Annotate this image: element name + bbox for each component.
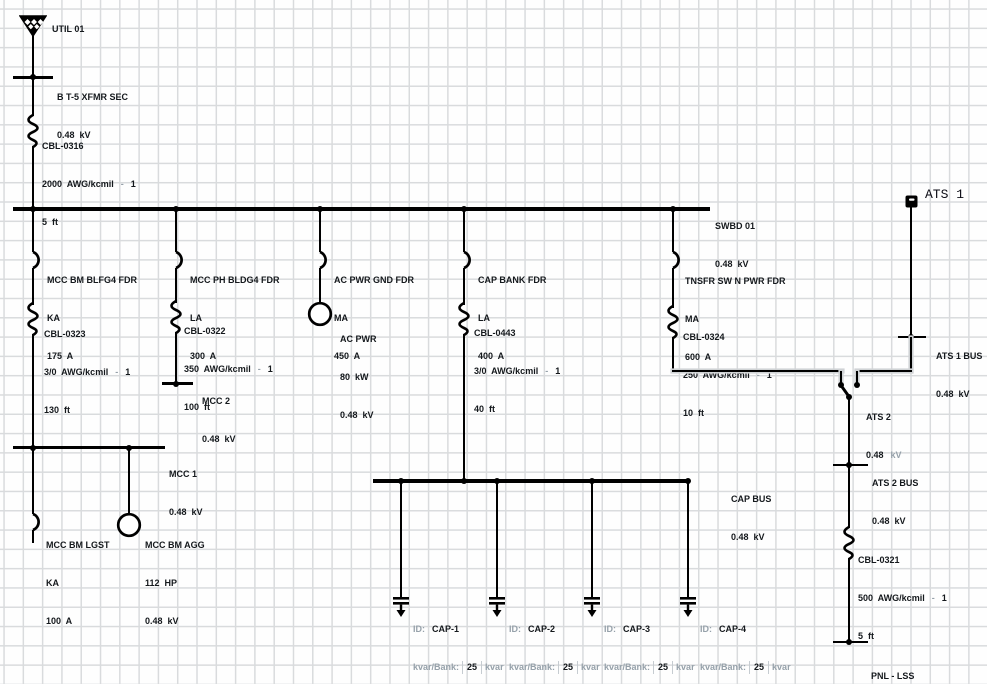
connector [856, 370, 912, 373]
connector [672, 210, 675, 252]
cable-label-cbl-0323[interactable]: CBL-0323 3/0 AWG/kcmil-1 130 ft [44, 303, 130, 442]
connector [32, 210, 35, 252]
load-label-ac-pwr[interactable]: AC PWR 80 kW 0.48 kV [340, 308, 377, 447]
connector [175, 210, 178, 252]
connector [32, 268, 35, 305]
cable-symbol-cbl-0316[interactable] [25, 114, 41, 148]
capacitor-symbol-cap-3[interactable] [584, 597, 600, 619]
cable-label-cbl-0316[interactable]: CBL-0316 2000 AWG/kcmil-1 5 ft [42, 115, 136, 254]
oneline-diagram-canvas: UTIL 01 B T-5 XFMR SEC 0.48 kV CBL-0316 … [0, 0, 987, 684]
connector [672, 268, 675, 308]
bus-swbd01[interactable] [13, 207, 710, 211]
junction-dot [30, 74, 36, 80]
fuse-symbol-mcc-bm-lgst[interactable] [31, 512, 44, 532]
junction-dot [173, 381, 179, 387]
connector [848, 558, 851, 643]
cable-symbol-cbl-0321[interactable] [841, 526, 857, 560]
fuse-symbol-fdr2[interactable] [174, 250, 187, 270]
fuse-symbol-fdr3[interactable] [318, 250, 331, 270]
capacitor-symbol-cap-1[interactable] [393, 597, 409, 619]
connector [32, 334, 35, 447]
cable-symbol-cbl-0324[interactable] [665, 305, 681, 339]
fuse-symbol-fdr4[interactable] [462, 250, 475, 270]
fuse-symbol-fdr5[interactable] [671, 250, 684, 270]
connector [32, 146, 35, 210]
connector [496, 482, 499, 598]
bus-label-ats1-bus[interactable]: ATS 1 BUS 0.48 kV [936, 325, 982, 426]
cable-symbol-cbl-0443[interactable] [456, 302, 472, 336]
junction-dot [846, 639, 852, 645]
connector [910, 337, 913, 372]
connector [672, 370, 843, 373]
load-label-mcc-bm-agg[interactable]: MCC BM AGG 112 HP 0.48 kV [145, 514, 205, 653]
connector [128, 448, 131, 514]
junction-dot [461, 478, 467, 484]
connector [175, 268, 178, 303]
motor-symbol-ac-pwr[interactable] [307, 301, 333, 327]
bus-label-pnl-lss[interactable]: PNL - LSS 0.208 kV [871, 645, 914, 684]
connector [32, 530, 35, 543]
connector [672, 337, 675, 373]
connector [910, 207, 913, 337]
ats1-label[interactable]: ATS 1 [925, 188, 964, 202]
connector [175, 332, 178, 383]
utility-source-icon[interactable] [19, 15, 47, 38]
motor-symbol-mcc-bm-agg[interactable] [116, 512, 142, 538]
bus-cap[interactable] [373, 479, 689, 482]
connector [848, 396, 851, 466]
capacitor-symbol-cap-2[interactable] [489, 597, 505, 619]
fuse-symbol-fdr1[interactable] [31, 250, 44, 270]
connector [400, 482, 403, 598]
connector [319, 268, 322, 304]
cable-symbol-cbl-0322[interactable] [168, 300, 184, 334]
connector [463, 210, 466, 252]
capacitor-symbol-cap-4[interactable] [680, 597, 696, 619]
cable-label-cbl-0443[interactable]: CBL-0443 3/0 AWG/kcmil-1 40 ft [474, 302, 560, 441]
bus-label-mcc2[interactable]: MCC 2 0.48 kV [202, 370, 236, 471]
load-label-mcc-bm-lgst[interactable]: MCC BM LGST KA 100 A [46, 514, 110, 653]
ats2-contact-emergency [854, 382, 860, 388]
connector [463, 268, 466, 305]
utility-label[interactable]: UTIL 01 [52, 23, 84, 36]
connector [319, 210, 322, 252]
connector [32, 448, 35, 514]
connector [591, 482, 594, 598]
connector [463, 334, 466, 481]
bus-label-cap-bus[interactable]: CAP BUS 0.48 kV [731, 468, 771, 569]
cable-label-cbl-0324[interactable]: CBL-0324 250 AWG/kcmil-1 10 ft [683, 306, 772, 445]
cable-symbol-cbl-0323[interactable] [25, 302, 41, 336]
cap-label-4[interactable]: ID:CAP-4 kvar/Bank:25kvar [700, 598, 791, 684]
connector [848, 465, 851, 528]
connector [687, 482, 690, 598]
